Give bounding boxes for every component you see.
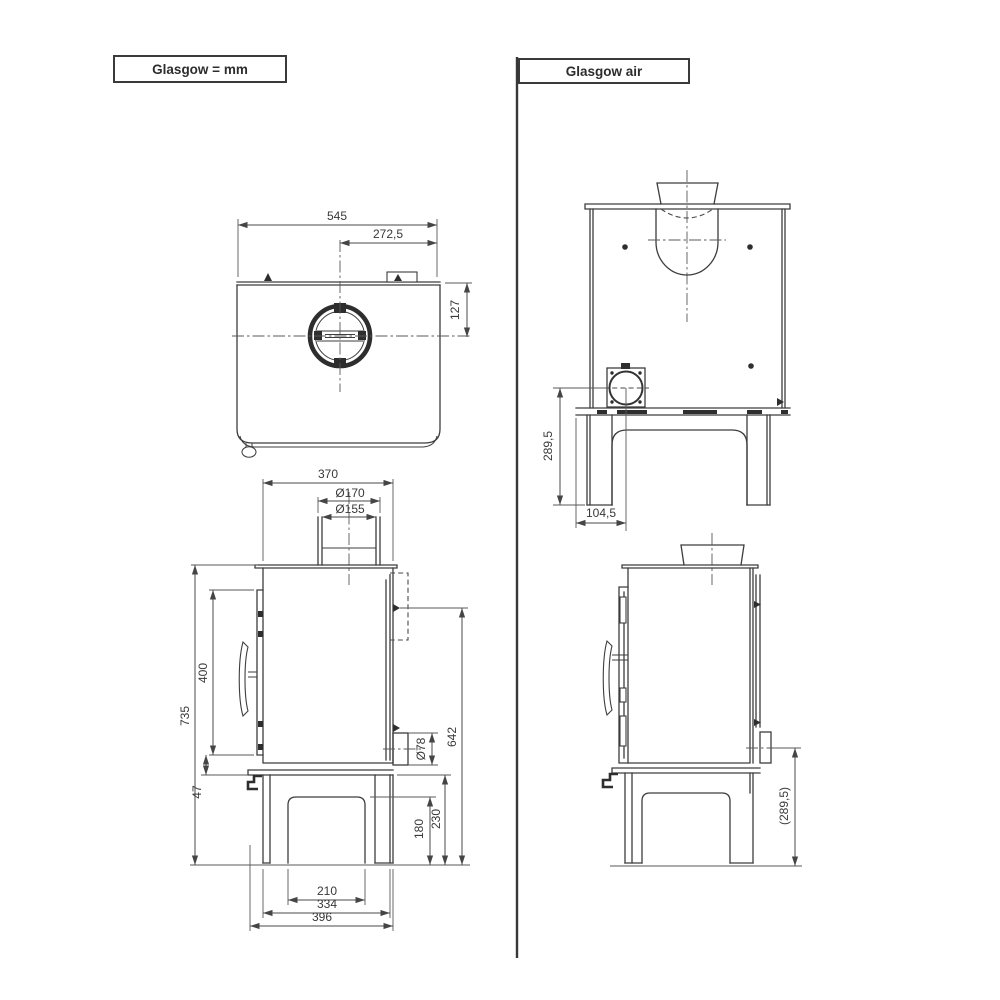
dim-label-289-5: 289,5: [541, 431, 555, 461]
air-inlet-stub-side: [760, 732, 771, 763]
technical-drawing-canvas: 545 272,5 127: [0, 0, 1000, 1000]
dim-label-170: Ø170: [335, 486, 365, 500]
dim-label-230: 230: [429, 809, 443, 829]
dim-label-334: 334: [317, 897, 337, 911]
plan-view: 545 272,5 127: [232, 209, 472, 457]
dim-label-104-5: 104,5: [586, 506, 616, 520]
dim-label-396: 396: [312, 910, 332, 924]
dim-label-400: 400: [196, 663, 210, 683]
door-outline: [257, 590, 263, 755]
dim-label-47: 47: [190, 785, 204, 799]
air-side-view: (289,5): [603, 533, 802, 866]
rear-view: 289,5 104,5: [541, 170, 790, 531]
door-frame-strip: [619, 587, 628, 763]
top-bracket: [387, 272, 417, 282]
dim-label-155: Ø155: [335, 502, 365, 516]
air-base-pedestal: [603, 768, 760, 863]
door-handle: [239, 642, 257, 716]
door-handle-ring: [242, 443, 256, 457]
base-pedestal: [248, 770, 393, 863]
dim-label-127: 127: [448, 300, 462, 320]
drawing-page: Glasgow = mm Glasgow air: [0, 0, 1000, 1000]
dim-label-78: Ø78: [414, 737, 428, 760]
top-latch-tab: [264, 273, 272, 281]
flue-collar-top: [232, 240, 472, 392]
dim-label-642: 642: [445, 727, 459, 747]
dim-label-272-5: 272,5: [373, 227, 403, 241]
air-inlet-plate: [604, 363, 649, 407]
dim-label-210: 210: [317, 884, 337, 898]
dim-label-289-5-ref: (289,5): [777, 787, 791, 825]
dim-label-370: 370: [318, 467, 338, 481]
dim-label-735: 735: [178, 706, 192, 726]
dim-label-545: 545: [327, 209, 347, 223]
dim-label-180: 180: [412, 819, 426, 839]
side-view: 370 Ø170 Ø155 735 400 47 Ø78 642 230 180…: [178, 467, 470, 931]
